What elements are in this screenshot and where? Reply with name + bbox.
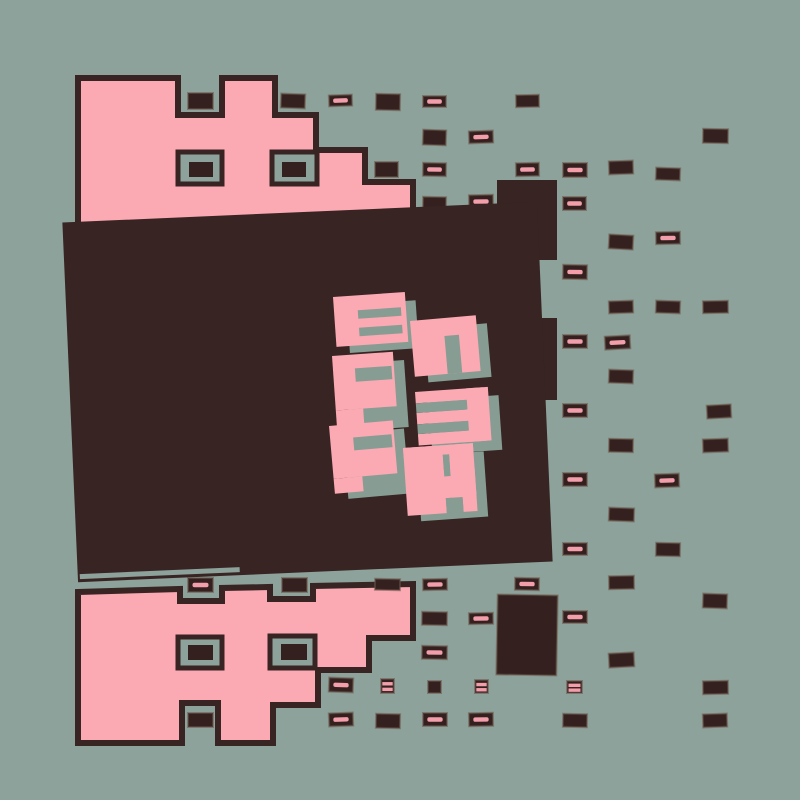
letter-stroke [333, 292, 408, 347]
grid-rect-dash [656, 232, 680, 244]
grid-rect-plain [282, 578, 307, 592]
pink-stripe [382, 682, 392, 685]
grid-rect-stripes [475, 680, 488, 693]
pink-dash [520, 167, 535, 172]
letter-P2 [329, 420, 410, 500]
grid-rect-stripes [567, 681, 582, 693]
grid-rect-dash [329, 713, 353, 727]
artwork-canvas [0, 0, 800, 800]
grid-rect-plain [609, 161, 633, 175]
window-inner-rect [188, 645, 213, 660]
pink-dash [567, 168, 582, 172]
grid-rect-plain [376, 94, 400, 110]
grid-rect-dash [329, 678, 353, 693]
pink-dash [659, 478, 675, 483]
grid-rect-plain [422, 612, 447, 625]
pink-stripe [382, 688, 392, 691]
pink-stripe [476, 683, 486, 686]
grid-rect-plain [609, 508, 634, 522]
grid-rect-plain [609, 234, 634, 249]
window-inner-rect [282, 162, 306, 177]
pink-dash [427, 167, 442, 172]
pink-dash [473, 199, 488, 204]
grid-rect-plain [423, 130, 447, 146]
grid-rect-dash [469, 613, 493, 624]
pink-dash [473, 717, 488, 722]
grid-rect-plain [281, 94, 305, 109]
pink-dash [333, 98, 348, 103]
grid-rect-plain [188, 713, 213, 727]
grid-rect-plain [609, 301, 633, 314]
grid-rect-dash [423, 163, 446, 176]
grid-rect-dash [563, 163, 587, 177]
pink-dash [567, 201, 582, 205]
pink-dash [426, 650, 442, 655]
grid-rect-dash [423, 96, 446, 107]
pink-stripe [476, 688, 486, 691]
letter-H [403, 442, 488, 522]
grid-rect-dash [563, 197, 586, 210]
grid-rect-dash [469, 131, 493, 144]
letter-counter [446, 497, 464, 513]
pink-dash [519, 582, 534, 587]
grid-rect-plain [376, 714, 400, 728]
grid-rect-plain [428, 681, 441, 693]
pink-dash [567, 615, 582, 619]
grid-rect-plain [188, 93, 213, 109]
letter-stroke [462, 492, 477, 512]
grid-rect-dash [423, 713, 447, 726]
grid-rect-plain [703, 129, 728, 143]
grid-rect-plain [516, 95, 539, 107]
window-inner-rect [281, 644, 307, 660]
letter-stroke [336, 409, 364, 426]
grid-rect-plain [563, 714, 587, 727]
pink-dash [333, 683, 349, 688]
pink-dash [193, 583, 209, 587]
grid-rect-plain [609, 370, 633, 384]
window-inner-rect [189, 162, 213, 177]
grid-rect-plain [703, 439, 728, 453]
letter-stroke [334, 476, 364, 493]
grid-rect-plain [656, 301, 680, 314]
grid-rect-dash [423, 579, 447, 590]
pink-stripe [569, 684, 581, 687]
grid-rect-dash [655, 474, 679, 488]
pink-dash [609, 340, 625, 345]
grid-rect-plain [375, 579, 400, 590]
large-dark-block [496, 594, 557, 675]
grid-rect-plain [703, 301, 728, 313]
grid-rect-plain [609, 439, 633, 452]
grid-rect-dash [515, 578, 539, 590]
grid-rect-plain [375, 162, 398, 177]
grid-rect-dash [563, 404, 587, 417]
pink-dash [427, 582, 442, 587]
grid-rect-dash [469, 713, 493, 726]
grid-rect-stripes [381, 679, 394, 693]
pink-dash [567, 408, 582, 412]
grid-rect-dash [516, 163, 539, 176]
grid-rect-plain [703, 714, 727, 728]
letter-5 [410, 314, 492, 383]
pink-dash [473, 135, 489, 140]
grid-rect-dash [563, 265, 587, 279]
grid-rect-dash [188, 578, 213, 592]
pink-dash [333, 717, 349, 722]
pink-dash [567, 339, 582, 343]
generative-art-svg [0, 0, 800, 800]
grid-rect-plain [656, 168, 680, 181]
grid-rect-plain [703, 594, 727, 609]
pink-stripe [569, 688, 581, 691]
grid-rect-plain [707, 404, 732, 418]
grid-rect-dash [329, 95, 352, 107]
grid-rect-plain [703, 681, 728, 694]
grid-rect-dash [422, 646, 447, 659]
grid-rect-dash [563, 611, 587, 623]
pink-dash [427, 717, 442, 721]
pink-dash [473, 616, 488, 621]
grid-rect-plain [656, 543, 680, 556]
grid-rect-dash [563, 335, 587, 348]
pink-dash [567, 547, 582, 551]
grid-rect-dash [563, 543, 587, 555]
pink-dash [567, 477, 582, 481]
pink-dash [427, 99, 442, 103]
pink-dash [660, 236, 675, 241]
grid-rect-plain [609, 652, 635, 667]
pink-dash [567, 270, 582, 275]
grid-rect-dash [563, 473, 587, 486]
letter-stroke [466, 387, 492, 442]
grid-rect-dash [605, 335, 631, 349]
grid-rect-plain [609, 576, 634, 589]
letter-counter [355, 366, 392, 382]
letter-P1 [332, 351, 409, 432]
